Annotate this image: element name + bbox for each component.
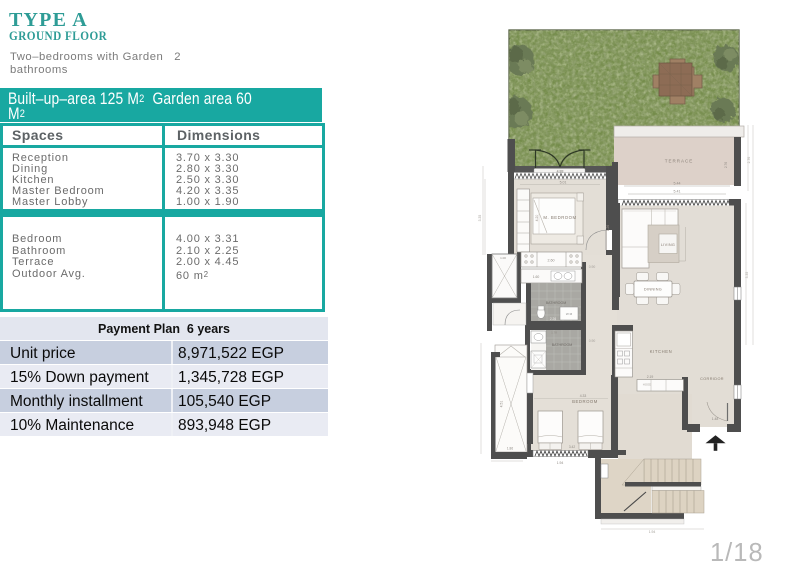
svg-text:CORRIDOR: CORRIDOR	[700, 377, 724, 381]
svg-text:3.42: 3.42	[569, 445, 575, 449]
svg-text:1.48: 1.48	[712, 417, 719, 421]
svg-text:2.60: 2.60	[548, 259, 555, 263]
svg-text:5.41: 5.41	[674, 190, 681, 194]
svg-text:1.00: 1.00	[500, 256, 506, 260]
svg-text:4.88: 4.88	[557, 169, 564, 173]
svg-text:2.26: 2.26	[550, 317, 556, 321]
svg-text:1.60: 1.60	[533, 275, 540, 279]
svg-text:5.01: 5.01	[560, 181, 567, 185]
svg-text:3.35: 3.35	[745, 272, 749, 279]
svg-text:1.94: 1.94	[557, 461, 564, 465]
svg-text:W M: W M	[566, 312, 573, 316]
svg-text:DINNING: DINNING	[644, 288, 662, 292]
svg-text:1.26: 1.26	[606, 225, 610, 231]
svg-text:2.19: 2.19	[647, 375, 654, 379]
svg-text:BATHROOM: BATHROOM	[546, 301, 567, 305]
svg-text:1.94: 1.94	[649, 530, 656, 534]
svg-text:2.76: 2.76	[724, 162, 728, 168]
svg-text:LIVING: LIVING	[661, 243, 675, 247]
svg-text:M. BEDROOM: M. BEDROOM	[543, 215, 576, 220]
svg-text:4.20: 4.20	[535, 215, 539, 222]
svg-text:3.35: 3.35	[478, 215, 482, 222]
svg-text:HOOD: HOOD	[643, 383, 651, 387]
svg-text:1.86: 1.86	[507, 447, 513, 451]
svg-text:BATHROOM: BATHROOM	[552, 343, 573, 347]
svg-text:0.90: 0.90	[589, 339, 596, 343]
svg-text:BEDROOM: BEDROOM	[572, 399, 598, 404]
svg-text:4.51: 4.51	[500, 401, 504, 408]
svg-text:1.78: 1.78	[551, 331, 557, 335]
svg-text:0.90: 0.90	[589, 265, 596, 269]
svg-text:TERRACE: TERRACE	[665, 159, 694, 164]
svg-text:4.33: 4.33	[580, 394, 587, 398]
svg-text:KITCHEN: KITCHEN	[650, 349, 673, 354]
svg-text:2.76: 2.76	[747, 157, 751, 164]
svg-text:5.44: 5.44	[674, 182, 681, 186]
